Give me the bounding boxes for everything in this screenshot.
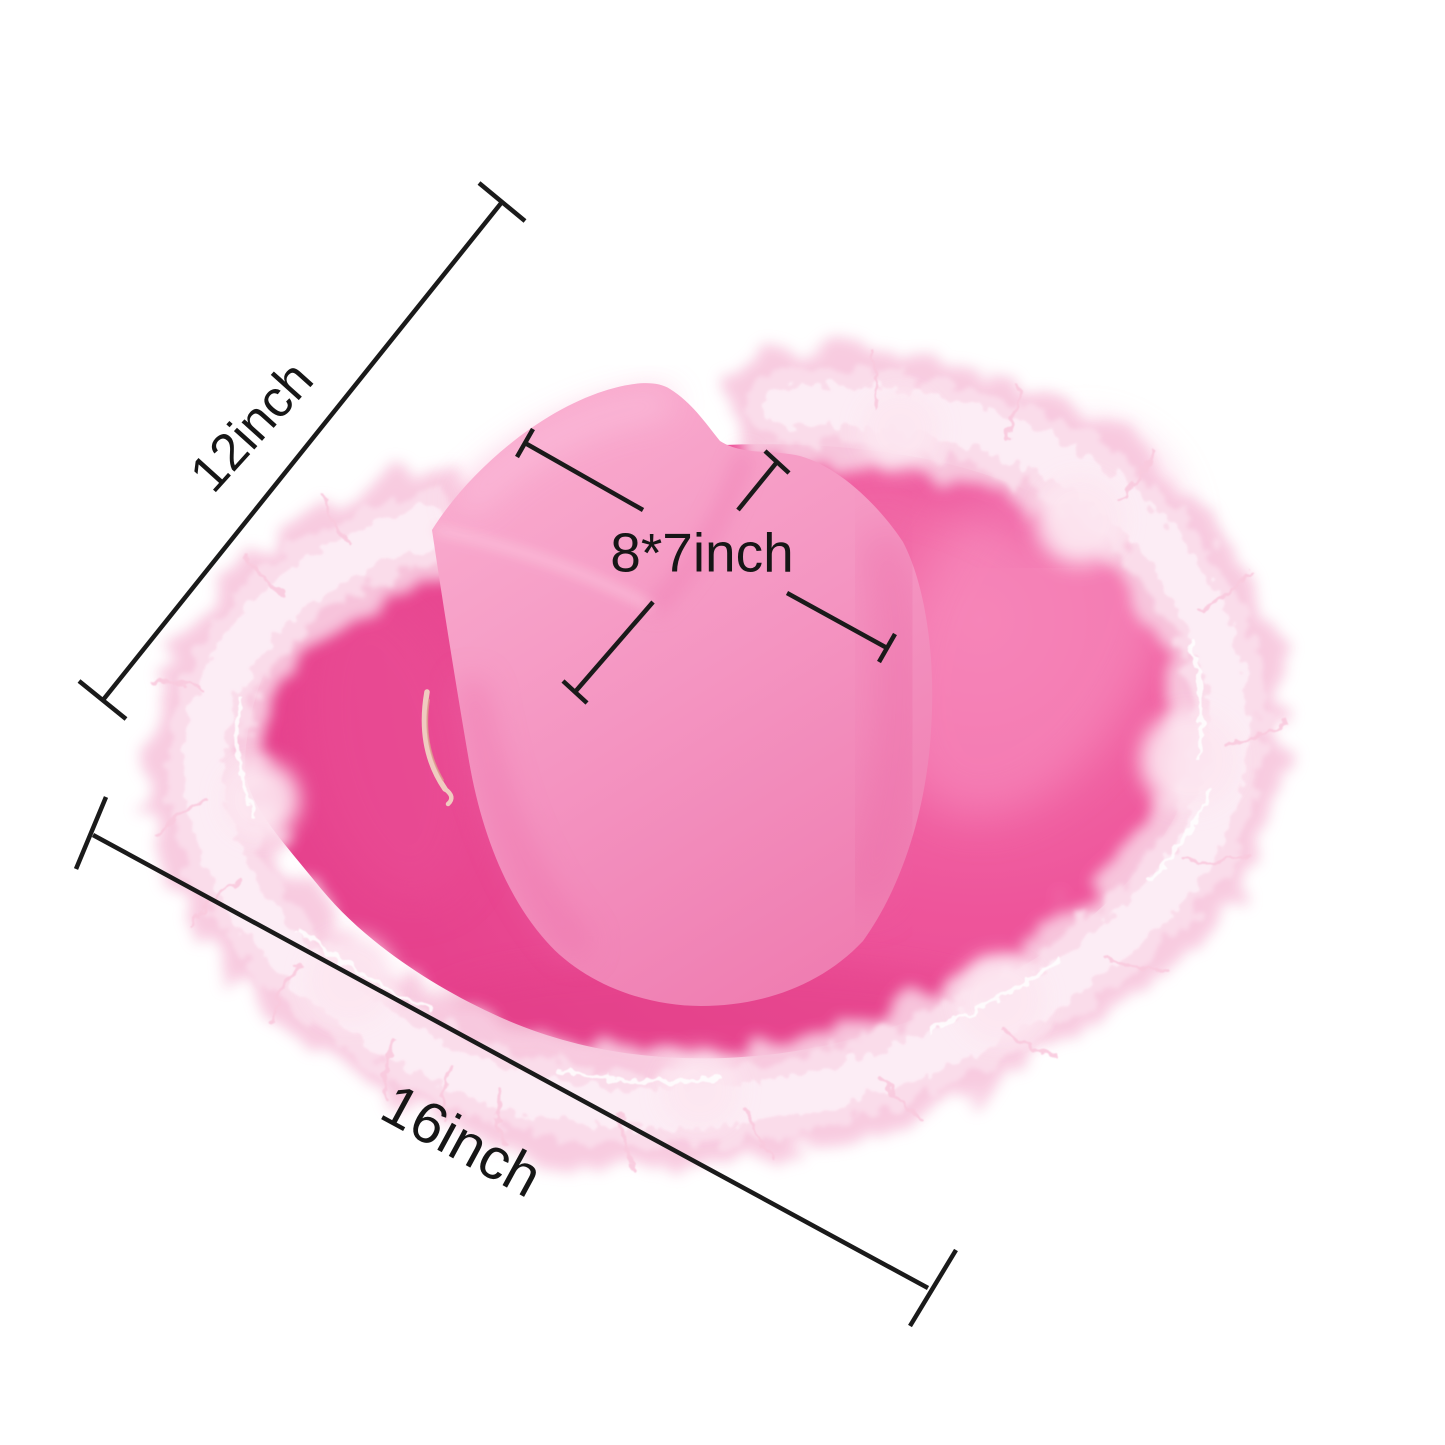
hat-dimension-illustration: 12inch 16inch 8*7inch	[0, 0, 1445, 1445]
label-crown-size: 8*7inch	[610, 521, 793, 583]
product-photo: 12inch 16inch 8*7inch	[0, 0, 1445, 1445]
